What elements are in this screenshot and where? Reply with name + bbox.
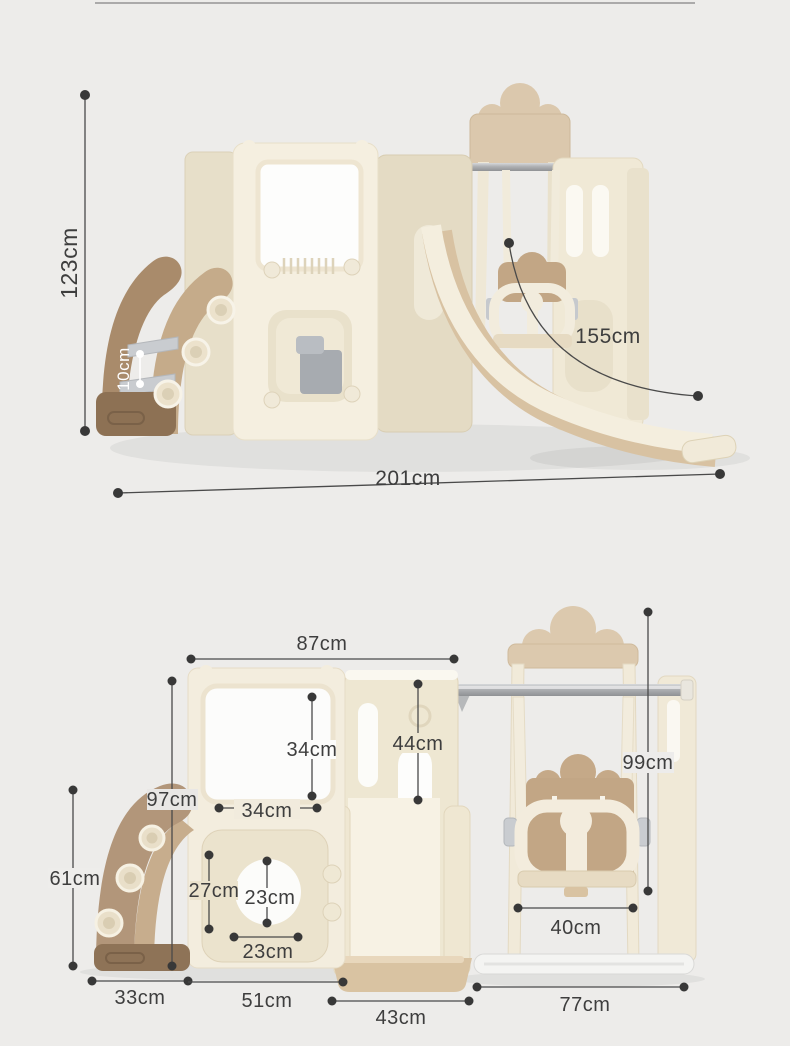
dim-label-slide-width: 43cm <box>376 1007 427 1029</box>
fence-panel <box>627 168 649 420</box>
dim-label-mid-panel-height: 44cm <box>393 733 444 755</box>
dim-label-tower-height: 97cm <box>147 789 198 811</box>
dim-label-porthole-panel-height: 27cm <box>189 880 240 902</box>
dim-label-total-height: 123cm <box>56 227 82 299</box>
dim-label-porthole-height: 23cm <box>245 887 296 909</box>
dim-seat-width: 40cm <box>514 904 638 940</box>
dim-base-width: 51cm <box>188 978 348 1013</box>
dim-label-porthole-width: 23cm <box>243 941 294 963</box>
swing-crossbar <box>455 684 687 696</box>
dim-ladder-height: 61cm <box>48 786 101 971</box>
seat-base <box>518 871 636 887</box>
dim-label-step-height: 10cm <box>114 347 133 391</box>
slide-front <box>332 798 472 992</box>
dim-label-ladder-height: 61cm <box>50 868 101 890</box>
slide-rail <box>444 806 470 976</box>
ladder-front <box>94 784 194 971</box>
playset-perspective-photo <box>96 83 750 472</box>
dim-label-seat-width: 40cm <box>551 917 602 939</box>
dim-label-window-width: 34cm <box>242 800 293 822</box>
tower-panel-perspective <box>233 140 378 440</box>
dim-label-ladder-width: 33cm <box>115 987 166 1009</box>
dim-slide-width: 43cm <box>328 997 474 1030</box>
cloud-topper <box>508 644 638 668</box>
dim-ladder-width: 33cm <box>88 977 193 1010</box>
dim-label-swing-base-width: 77cm <box>560 994 611 1016</box>
product-dimension-page: 123cm 10cm 155cm 201cm <box>0 0 790 1046</box>
dim-label-window-height: 34cm <box>287 739 338 761</box>
dimension-diagram: 123cm 10cm 155cm 201cm <box>0 0 790 1046</box>
panel-slot <box>566 185 583 257</box>
dim-label-total-length: 201cm <box>375 467 441 490</box>
guard-hub <box>560 805 592 837</box>
mid-panel-slot <box>358 703 378 787</box>
inner-steps <box>300 350 342 394</box>
dim-swing-base-width: 77cm <box>473 983 689 1017</box>
dim-label-slide-length: 155cm <box>575 325 641 348</box>
mid-panel-arch-window <box>398 749 432 800</box>
dim-tower-width: 87cm <box>187 633 459 664</box>
dim-label-swing-height: 99cm <box>623 752 674 774</box>
slide-landing <box>332 958 472 992</box>
dim-label-tower-width: 87cm <box>297 633 348 655</box>
swing-seat-front <box>504 697 650 897</box>
dim-label-base-width: 51cm <box>242 990 293 1012</box>
dim-total-height: 123cm <box>56 90 90 436</box>
slide-face <box>348 798 440 960</box>
dim-step-height: 10cm <box>114 347 144 391</box>
panel-slot <box>592 185 609 257</box>
tower-window <box>258 162 361 269</box>
dim-total-length: 201cm <box>113 467 725 498</box>
